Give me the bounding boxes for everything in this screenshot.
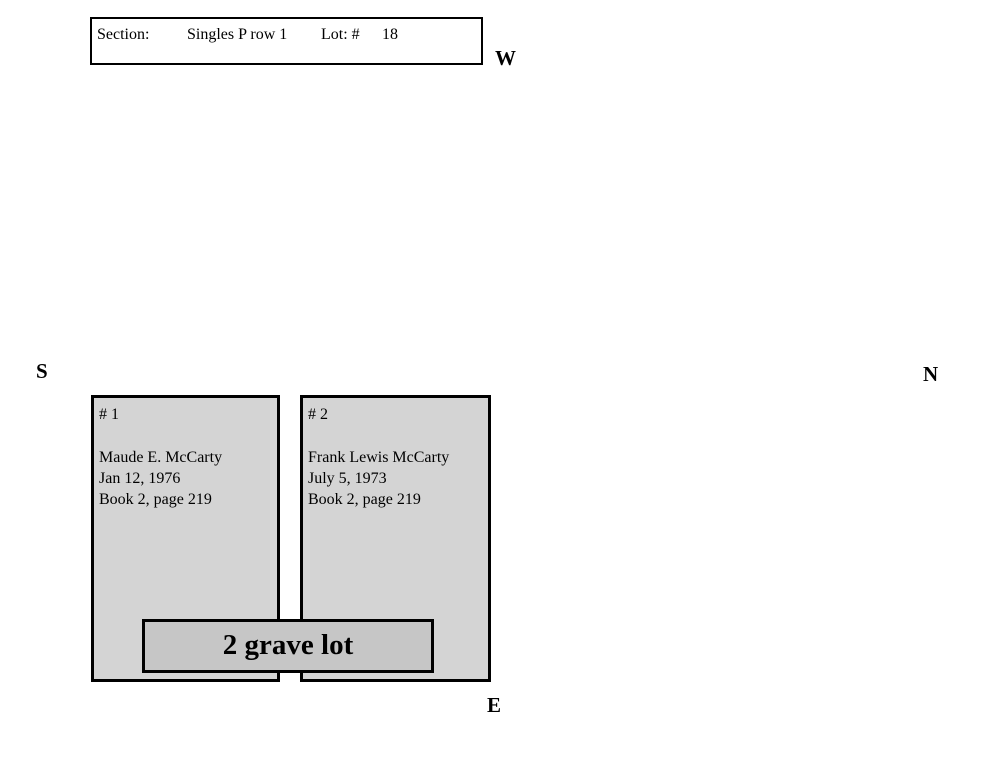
grave-occupant-name: Maude E. McCarty <box>99 447 272 468</box>
grave-number: # 1 <box>99 404 272 425</box>
grave-number: # 2 <box>308 404 483 425</box>
spacer <box>308 425 483 447</box>
grave-occupant-name: Frank Lewis McCarty <box>308 447 483 468</box>
grave-death-date: July 5, 1973 <box>308 468 483 489</box>
section-label: Section: <box>97 24 149 45</box>
cemetery-lot-diagram: Section: Singles P row 1 Lot: # 18 W S N… <box>0 0 1000 773</box>
lot-label: Lot: # <box>321 24 360 45</box>
grave-death-date: Jan 12, 1976 <box>99 468 272 489</box>
compass-south-label: S <box>36 361 48 382</box>
section-lot-legend: Section: Singles P row 1 Lot: # 18 <box>90 17 483 65</box>
lot-type-label: 2 grave lot <box>145 622 431 669</box>
spacer <box>99 425 272 447</box>
grave-record-reference: Book 2, page 219 <box>99 489 272 510</box>
compass-east-label: E <box>487 695 501 716</box>
compass-north-label: N <box>923 364 938 385</box>
lot-type-banner: 2 grave lot <box>142 619 434 673</box>
section-value: Singles P row 1 <box>187 24 287 45</box>
compass-west-label: W <box>495 48 516 69</box>
grave-record-reference: Book 2, page 219 <box>308 489 483 510</box>
lot-number: 18 <box>382 24 398 45</box>
